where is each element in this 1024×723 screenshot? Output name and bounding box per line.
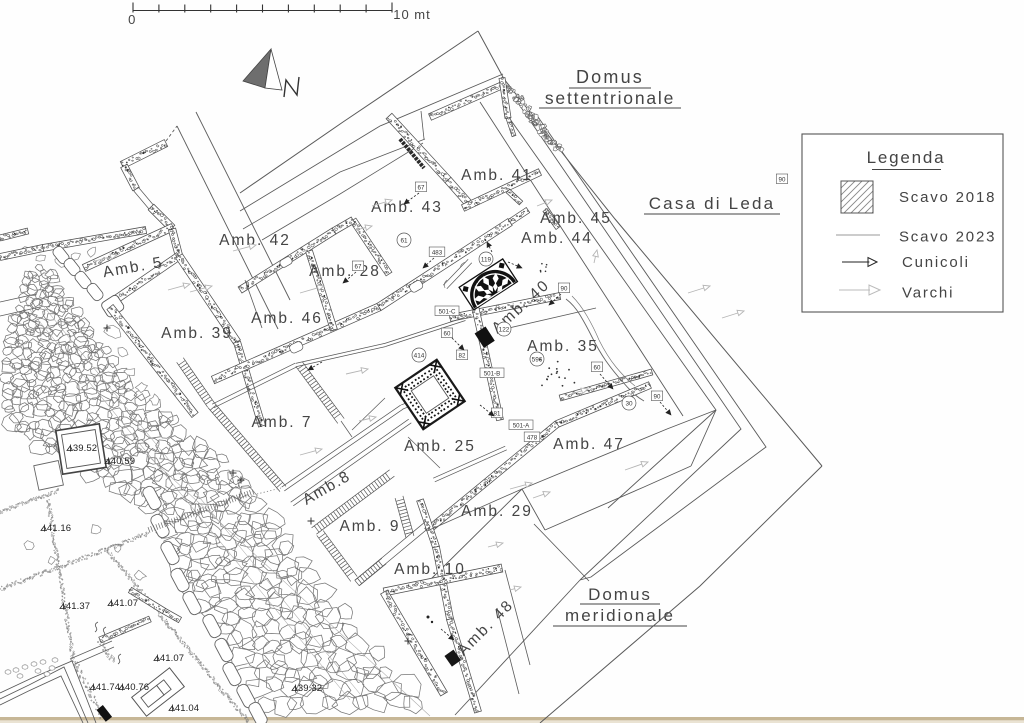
svg-text:61: 61 xyxy=(400,237,408,244)
svg-text:483: 483 xyxy=(432,249,443,256)
svg-text:39.52: 39.52 xyxy=(73,443,97,454)
svg-text:501-A: 501-A xyxy=(513,422,530,429)
svg-text:0: 0 xyxy=(128,12,136,27)
svg-text:41.37: 41.37 xyxy=(66,601,90,612)
svg-text:Domus: Domus xyxy=(576,67,644,87)
svg-text:41.07: 41.07 xyxy=(114,598,138,609)
svg-text:Amb. 45: Amb. 45 xyxy=(540,210,612,227)
svg-text:Cunicoli: Cunicoli xyxy=(902,254,970,271)
svg-text:40.59: 40.59 xyxy=(111,456,135,467)
svg-text:Scavo 2018: Scavo 2018 xyxy=(899,189,996,206)
svg-text:81: 81 xyxy=(494,410,501,417)
svg-text:Amb. 25: Amb. 25 xyxy=(404,438,476,455)
svg-text:41.16: 41.16 xyxy=(47,523,71,534)
svg-text:501-C: 501-C xyxy=(439,308,456,315)
svg-text:Domus: Domus xyxy=(588,585,652,604)
svg-text:Amb. 7: Amb. 7 xyxy=(251,414,312,431)
svg-text:Amb. 10: Amb. 10 xyxy=(394,561,466,578)
svg-text:Casa di Leda: Casa di Leda xyxy=(649,194,776,213)
svg-text:41.07: 41.07 xyxy=(160,653,184,664)
svg-text:Amb. 44: Amb. 44 xyxy=(521,230,593,247)
svg-text:Amb. 41: Amb. 41 xyxy=(461,167,533,184)
svg-text:90: 90 xyxy=(654,393,661,400)
svg-text:Amb. 47: Amb. 47 xyxy=(553,436,625,453)
svg-text:Amb. 39: Amb. 39 xyxy=(161,325,233,342)
svg-text:478: 478 xyxy=(527,434,538,441)
svg-text:settentrionale: settentrionale xyxy=(545,88,675,108)
svg-text:Amb. 28: Amb. 28 xyxy=(309,263,381,280)
svg-text:Legenda: Legenda xyxy=(867,148,946,167)
svg-text:Amb. 29: Amb. 29 xyxy=(461,503,533,520)
svg-text:Amb. 9: Amb. 9 xyxy=(339,518,400,535)
svg-text:67: 67 xyxy=(355,263,362,270)
svg-text:82: 82 xyxy=(459,352,466,359)
svg-text:41.04: 41.04 xyxy=(175,703,199,714)
svg-text:39.32: 39.32 xyxy=(298,683,322,694)
svg-text:67: 67 xyxy=(418,184,425,191)
svg-text:414: 414 xyxy=(414,352,425,359)
svg-text:Amb. 46: Amb. 46 xyxy=(251,310,323,327)
svg-text:501-B: 501-B xyxy=(484,370,501,377)
svg-text:Varchi: Varchi xyxy=(902,285,954,302)
svg-text:10 mt: 10 mt xyxy=(393,7,431,22)
svg-text:119: 119 xyxy=(481,256,492,263)
svg-text:Amb. 42: Amb. 42 xyxy=(219,232,291,249)
svg-text:90: 90 xyxy=(561,285,568,292)
svg-text:60: 60 xyxy=(594,364,601,371)
svg-text:90: 90 xyxy=(779,176,786,183)
svg-text:60: 60 xyxy=(444,330,451,337)
svg-text:30: 30 xyxy=(625,400,633,407)
svg-text:41.74: 41.74 xyxy=(96,682,120,693)
svg-text:596: 596 xyxy=(532,356,543,363)
svg-text:40.76: 40.76 xyxy=(125,682,149,693)
svg-text:122: 122 xyxy=(499,326,510,333)
svg-text:Scavo 2023: Scavo 2023 xyxy=(899,229,996,246)
